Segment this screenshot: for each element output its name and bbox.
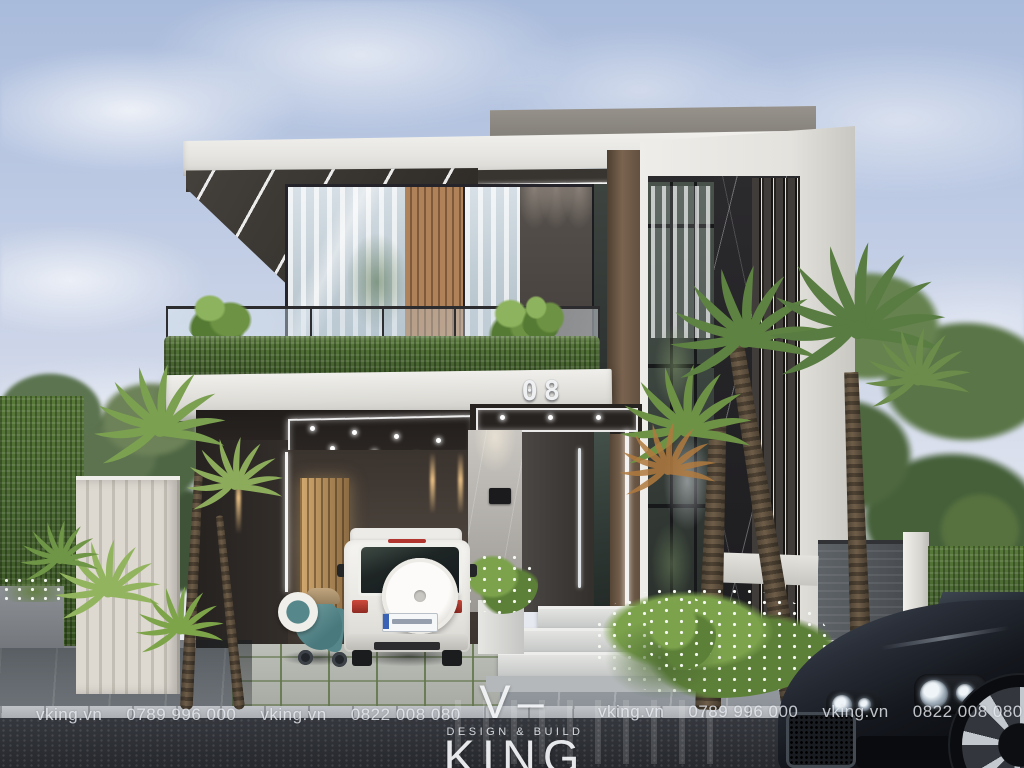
vking-tagline: DESIGN & BUILD [408,726,622,738]
downlight [436,438,441,443]
plate-blue-strip [383,614,389,629]
fan-palm-rust [613,415,723,525]
downlight [548,415,553,420]
watermark-right: vking.vn 0789 996 000 vking.vn 0822 008 … [598,702,1023,722]
brake-light [388,539,426,543]
fern-palm [130,580,230,680]
watermark-phone: 0789 996 000 [126,705,236,725]
watermark-phone: 0789 996 000 [688,702,798,722]
architectural-render: 08 [0,0,1024,768]
wall-sconce-light [430,452,435,514]
watermark-site: vking.vn [598,702,664,722]
watermark-left: vking.vn 0789 996 000 vking.vn 0822 008 … [36,705,461,725]
scooter-spare-wheel [278,592,318,632]
wall-sconce-light [458,452,463,514]
white-suv [344,528,470,666]
watermark-phone: 0822 008 080 [913,702,1023,722]
plate-text-smudge [392,619,432,624]
flowering-shrub [644,594,716,670]
headlight-lens [956,684,974,702]
watermark-site: vking.vn [822,702,888,722]
watermark-site: vking.vn [36,705,102,725]
license-plate [382,613,438,632]
downlight [596,415,601,420]
flowering-shrub [462,552,538,614]
downlight [500,415,505,420]
downlight [310,426,315,431]
vking-logo: V–KING [408,674,622,768]
scooter-wheel [298,650,313,665]
house-number: 08 [521,376,566,408]
spare-wheel-cap [414,590,426,602]
suv-wheel [442,650,462,666]
fern-palm [15,515,105,605]
downlight [394,434,399,439]
tail-light [352,600,368,613]
vespa-scooter [276,580,354,668]
tall-palm-secondary [858,320,978,440]
bumper-step [374,642,440,650]
downlight [352,430,357,435]
fan-palm [180,430,290,540]
suv-wheel [352,650,372,666]
house-number-plaque: 08 [521,376,566,408]
entry-sidelight [594,432,610,612]
watermark-site: vking.vn [260,705,326,725]
door-handle [578,448,581,588]
intercom-keypad [489,488,511,504]
